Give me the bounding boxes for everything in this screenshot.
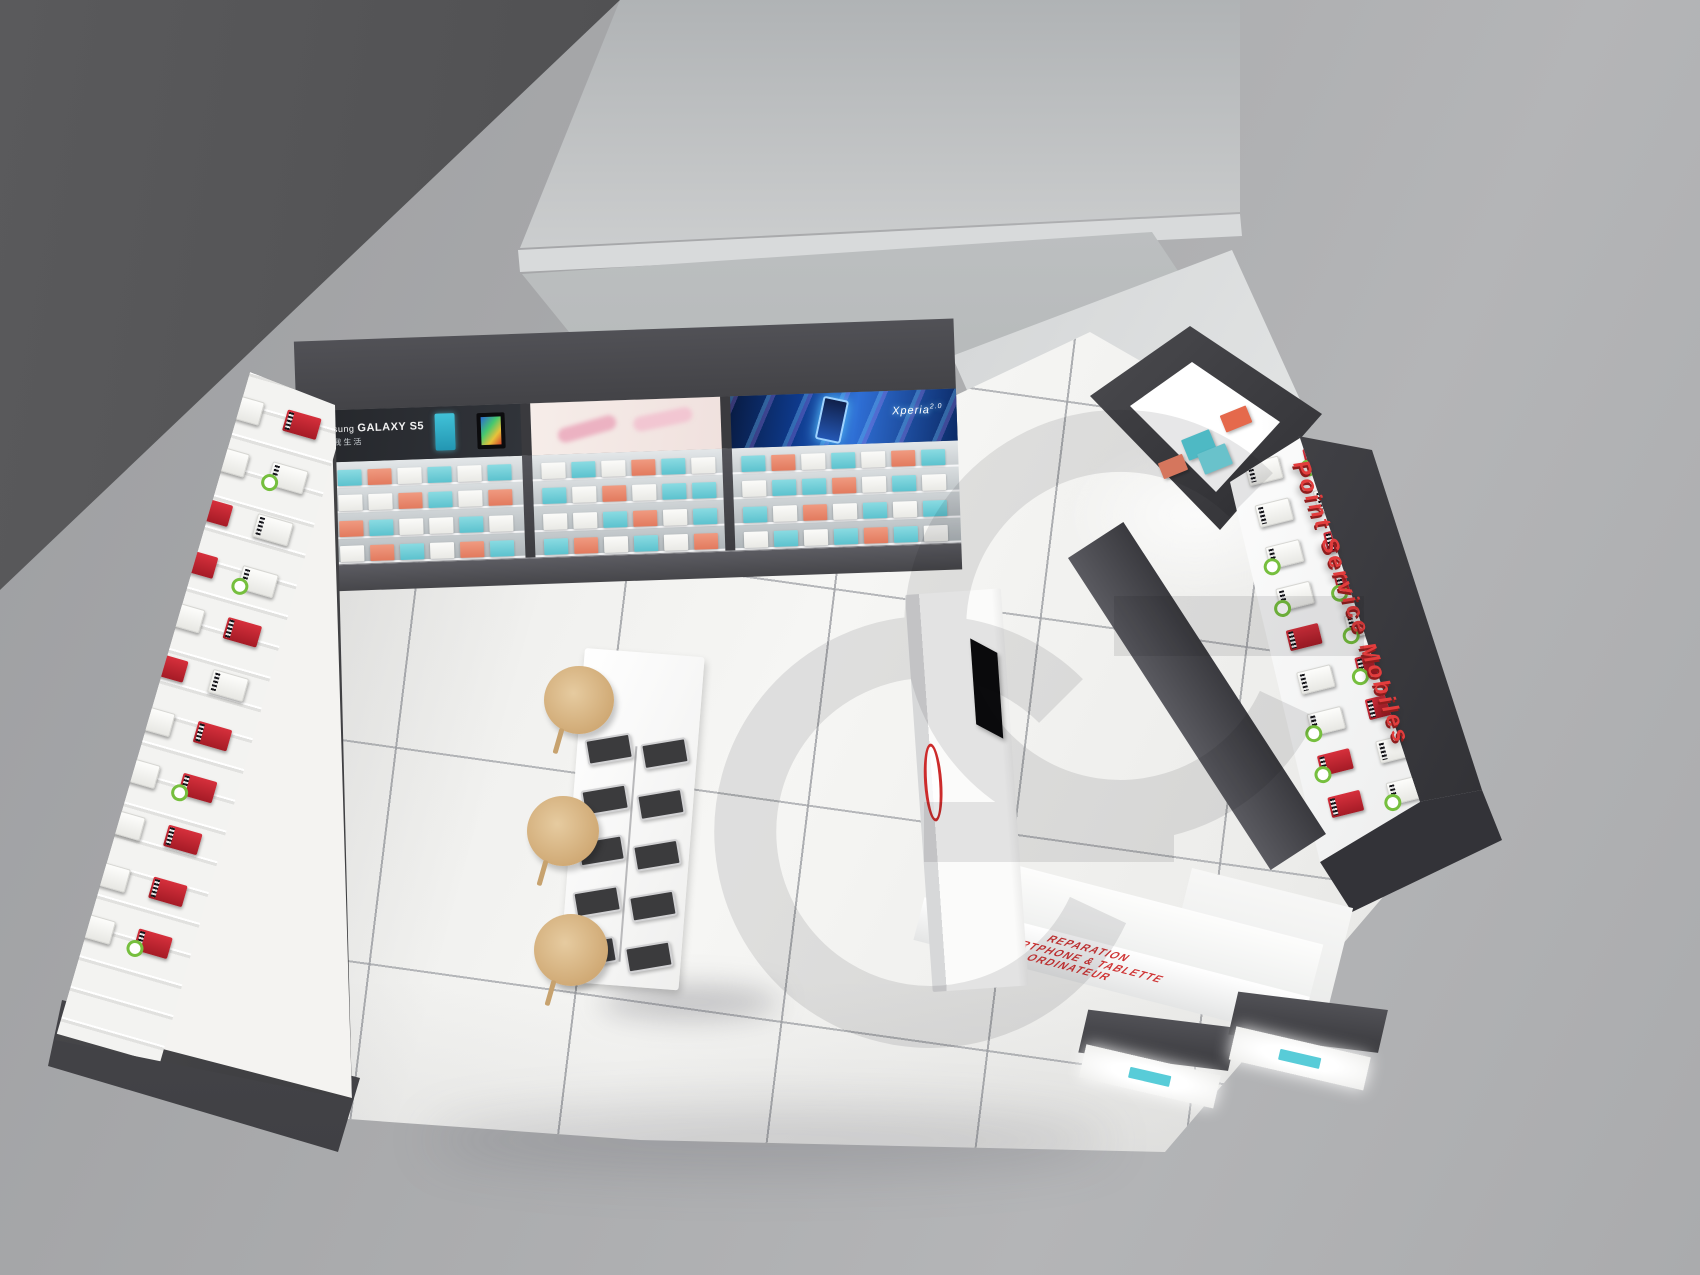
shelf-box [804, 529, 829, 546]
accessory-box [89, 860, 131, 893]
shelf-box [832, 477, 857, 494]
poster-collage [22, 684, 127, 864]
shelf-box [604, 536, 629, 553]
shelf-box [488, 489, 513, 506]
banner-xperia: Xperia2.0 [730, 389, 958, 449]
pink-phone-image [632, 406, 694, 433]
stool [527, 796, 599, 866]
accessory-box [1275, 581, 1315, 612]
accessory-box [194, 496, 234, 527]
accessory-box [1327, 790, 1364, 818]
shelf-box [459, 516, 484, 533]
accessory-box [208, 444, 250, 477]
shelf-box [662, 483, 687, 500]
accessory-box [178, 773, 218, 804]
accessory-box [1317, 748, 1354, 776]
right-wall-unit: Point Service Mobiles [1180, 400, 1540, 940]
poster-headset-photo [69, 559, 163, 701]
accessory-box [207, 669, 249, 702]
shelf-box [430, 542, 455, 559]
shelf-box [834, 528, 859, 545]
shelf-box [921, 448, 946, 465]
accessory-box [1254, 497, 1294, 528]
top-wall-unit: Samsung GALAXY S5 点亮我生活 Xperia2.0 [294, 319, 962, 592]
shelf-bay [532, 449, 725, 558]
shelf-box [861, 451, 886, 468]
shelf-box [773, 505, 798, 522]
shelf-box [601, 460, 626, 477]
shelf-box [891, 449, 916, 466]
shelf-box [661, 458, 686, 475]
stool [534, 914, 608, 986]
shelf-box [398, 492, 423, 509]
accessory-box [74, 912, 116, 945]
shelf-box [801, 453, 826, 470]
xperia-phone-image [815, 396, 850, 444]
shelf-box [338, 494, 363, 511]
shelf-box [893, 500, 918, 517]
accessory-box [163, 825, 203, 856]
shelf-box [743, 506, 768, 523]
shelf-box [460, 541, 485, 558]
shelf-box [367, 468, 392, 485]
shelf-box [632, 484, 657, 501]
demo-phone [632, 839, 682, 872]
shelf-box [340, 545, 365, 562]
shelf-box [457, 465, 482, 482]
shelf-box [922, 474, 947, 491]
shelf-box [664, 534, 689, 551]
shelf-box [741, 455, 766, 472]
accessory-box [222, 617, 262, 648]
shelf-box [771, 454, 796, 471]
shelf-box [742, 480, 767, 497]
accessory-box [237, 565, 279, 598]
accessory-box [148, 876, 188, 907]
shelf-box [663, 508, 688, 525]
accessory-box [267, 461, 309, 494]
shelf-box [863, 501, 888, 518]
shelf-box [573, 512, 598, 529]
pink-phone-image [556, 413, 618, 444]
accessory-box [1286, 623, 1323, 651]
shelf-box [744, 531, 769, 548]
shelf-box [542, 487, 567, 504]
shelf-box [369, 519, 394, 536]
shelf-box [339, 520, 364, 537]
shelf-bay [732, 440, 961, 550]
demo-phone [624, 940, 674, 973]
accessory-box [1306, 706, 1346, 737]
demo-phone [584, 733, 634, 766]
shelf-box [633, 510, 658, 527]
shelf-box [337, 469, 362, 486]
shelf-box [631, 459, 656, 476]
shelf-box [574, 537, 599, 554]
shelf-box [892, 475, 917, 492]
red-ring-logo-icon [921, 743, 944, 822]
shelf-box [634, 535, 659, 552]
accessory-box [133, 704, 175, 737]
counter-monitor [970, 638, 1003, 738]
shelf-box [774, 530, 799, 547]
samsung-phone-image [434, 413, 455, 451]
shelf-box [692, 482, 717, 499]
shelf-box [602, 485, 627, 502]
shelf-box [862, 476, 887, 493]
shelf-box [803, 504, 828, 521]
shelf-box [693, 507, 718, 524]
shelf-box [399, 518, 424, 535]
demo-phone [628, 890, 678, 923]
shelf-box [427, 466, 452, 483]
shelf-box [894, 526, 919, 543]
stool [544, 666, 614, 734]
shelf-box [694, 533, 719, 550]
shelf-box [400, 543, 425, 560]
accessory-box [1296, 664, 1336, 695]
shelf-box [571, 461, 596, 478]
xperia-banner-text: Xperia2.0 [892, 403, 943, 417]
accessory-box [104, 808, 146, 841]
display-item-teal [1128, 1067, 1171, 1087]
accessory-box [1265, 539, 1305, 570]
shelf-box [458, 490, 483, 507]
shelf-box [543, 513, 568, 530]
shelf-box [572, 486, 597, 503]
table-shadow [600, 985, 780, 1019]
accessory-box [149, 652, 189, 683]
demo-phone [636, 788, 686, 821]
shelf-box [924, 525, 949, 542]
shelf-box [370, 544, 395, 561]
shelf-box [802, 478, 827, 495]
samsung-tablet-image [476, 412, 505, 449]
accessory-box [1244, 456, 1284, 487]
shelf-box [864, 527, 889, 544]
demo-phone [640, 737, 690, 770]
accessory-box [163, 600, 205, 633]
banner-pink [530, 397, 722, 456]
shelf-box [490, 540, 515, 557]
accessory-box [223, 392, 265, 425]
shelf-box [541, 462, 566, 479]
shelf-box [429, 517, 454, 534]
accessory-box [193, 721, 233, 752]
shelf-box [772, 479, 797, 496]
demo-phone [572, 885, 622, 918]
shelf-box [368, 493, 393, 510]
accessory-box [119, 756, 161, 789]
shelf-box [487, 464, 512, 481]
floor-edge-shadow [430, 1108, 1110, 1172]
shelf-box [428, 491, 453, 508]
display-item-teal [1278, 1049, 1321, 1069]
accessory-box [133, 928, 173, 959]
shelf-box [831, 452, 856, 469]
accessory-box [252, 513, 294, 546]
shelf-box [833, 503, 858, 520]
store-3d-render-scene: Samsung GALAXY S5 点亮我生活 Xperia2.0 [0, 0, 1700, 1275]
accessory-box [282, 409, 322, 440]
display-table-2 [1218, 984, 1387, 1115]
shelf-box [397, 467, 422, 484]
shelf-box [489, 515, 514, 532]
shelf-box [691, 456, 716, 473]
shelf-box [544, 538, 569, 555]
shelf-box [603, 511, 628, 528]
accessory-box [179, 548, 219, 579]
shelf-box [923, 499, 948, 516]
